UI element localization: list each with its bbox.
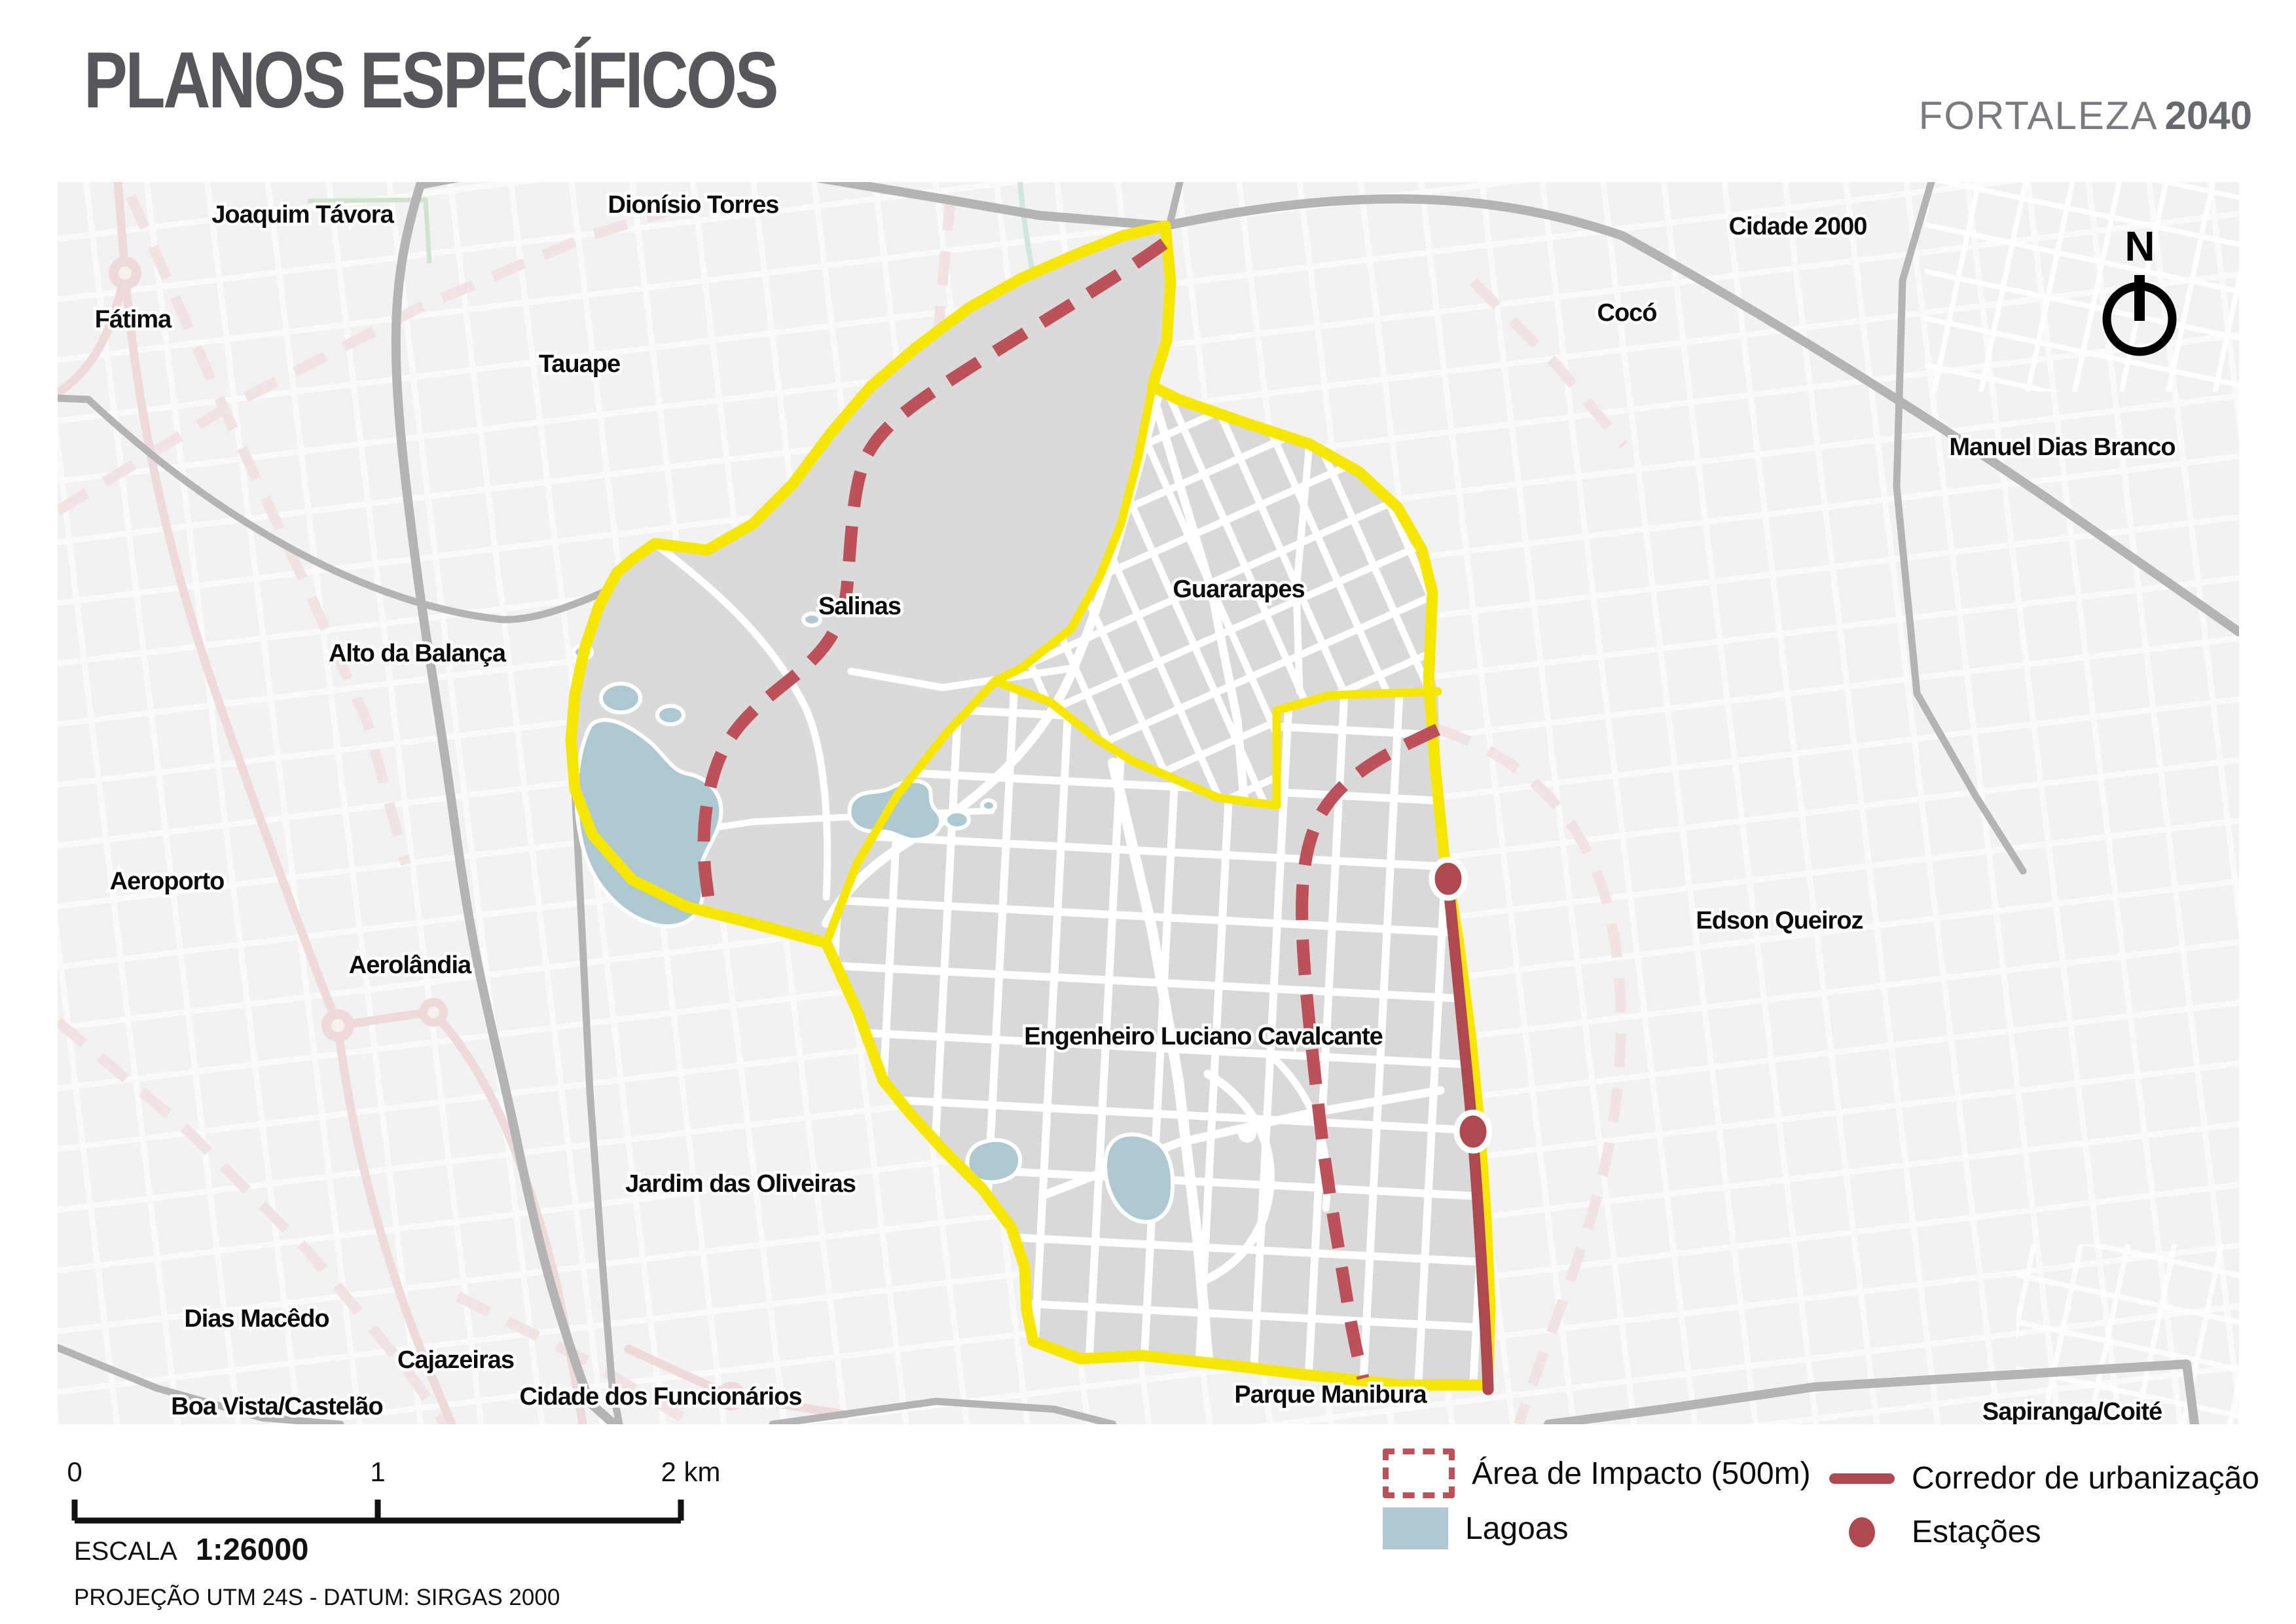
brand-name: FORTALEZA bbox=[1919, 94, 2159, 138]
map-label: Salinas bbox=[818, 593, 901, 620]
map-label: Aerolândia bbox=[349, 951, 472, 979]
map-label: Engenheiro Luciano Cavalcante bbox=[1024, 1023, 1382, 1050]
scale-tick-2: 2 km bbox=[661, 1456, 720, 1487]
station-dot-icon bbox=[1457, 1113, 1489, 1151]
legend-label: Corredor de urbanização bbox=[1912, 1460, 2259, 1496]
map-label: Joaquim Távora bbox=[211, 201, 394, 229]
brand: FORTALEZA2040 bbox=[1919, 93, 2252, 138]
impact-area-swatch-icon bbox=[1383, 1449, 1455, 1498]
map-label: Cajazeiras bbox=[397, 1346, 514, 1374]
map-label: Jardim das Oliveiras bbox=[625, 1170, 856, 1198]
scale-label: ESCALA bbox=[74, 1537, 177, 1566]
legend-item-impact: Área de Impacto (500m) bbox=[1383, 1449, 1811, 1498]
map-label: Dionísio Torres bbox=[608, 191, 779, 219]
legend-item-lagoas: Lagoas bbox=[1383, 1507, 1568, 1549]
map-label: Manuel Dias Branco bbox=[1949, 434, 2175, 461]
legend-label: Lagoas bbox=[1465, 1511, 1568, 1547]
sapiranga-grid bbox=[2016, 1244, 2239, 1424]
scale-ratio: 1:26000 bbox=[196, 1532, 309, 1566]
corridor-swatch-icon bbox=[1829, 1473, 1895, 1484]
map-label: Guararapes bbox=[1173, 576, 1304, 603]
page: PLANOS ESPECÍFICOS FORTALEZA2040 bbox=[0, 0, 2296, 1624]
map-label: Cocó bbox=[1597, 299, 1657, 327]
svg-text:N: N bbox=[2124, 223, 2154, 270]
station-dot-icon bbox=[1432, 860, 1465, 898]
map-label: Sapiranga/Coité bbox=[1982, 1398, 2162, 1424]
map-label: Tauape bbox=[539, 350, 620, 378]
scale-bar: 0 1 2 km bbox=[65, 1455, 733, 1534]
legend-item-corridor: Corredor de urbanização bbox=[1829, 1460, 2259, 1496]
legend-label: Estações bbox=[1912, 1514, 2041, 1550]
map-label: Fátima bbox=[95, 306, 172, 333]
map-label: Cidade dos Funcionários bbox=[520, 1383, 802, 1411]
map-label: Boa Vista/Castelão bbox=[171, 1393, 382, 1420]
map-label: Cidade 2000 bbox=[1729, 213, 1867, 240]
legend-item-estacoes: Estações bbox=[1829, 1514, 2041, 1550]
scale-ratio-row: ESCALA1:26000 bbox=[74, 1531, 308, 1567]
projection-note: PROJEÇÃO UTM 24S - DATUM: SIRGAS 2000 bbox=[74, 1585, 560, 1611]
map-label: Dias Macêdo bbox=[184, 1305, 329, 1333]
station-swatch-icon bbox=[1849, 1517, 1875, 1547]
map-label: Aeroporto bbox=[110, 868, 225, 895]
legend-label: Área de Impacto (500m) bbox=[1472, 1456, 1811, 1492]
map-label: Parque Manibura bbox=[1234, 1381, 1427, 1409]
map-label: Alto da Balança bbox=[329, 640, 507, 667]
map-canvas: Joaquim TávoraDionísio TorresFátimaTauap… bbox=[58, 182, 2239, 1424]
page-title: PLANOS ESPECÍFICOS bbox=[84, 34, 776, 126]
lagoon-swatch-icon bbox=[1383, 1507, 1448, 1549]
cidade2000-grid bbox=[1925, 182, 2239, 392]
brand-year: 2040 bbox=[2165, 94, 2252, 138]
map-label: Edson Queiroz bbox=[1696, 907, 1863, 934]
scale-tick-0: 0 bbox=[67, 1456, 82, 1487]
scale-tick-1: 1 bbox=[370, 1456, 385, 1487]
